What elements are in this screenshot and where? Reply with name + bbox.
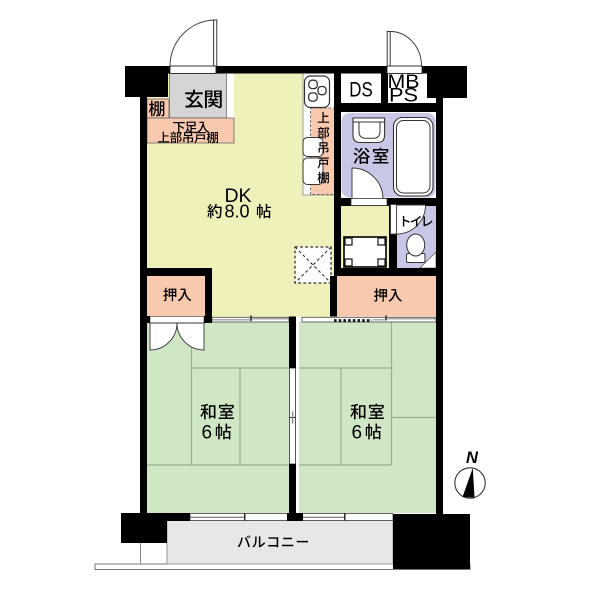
svg-text:DS: DS (349, 78, 373, 102)
svg-text:N: N (466, 449, 479, 467)
svg-text:6: 6 (202, 423, 213, 444)
svg-text:8.0: 8.0 (225, 202, 250, 222)
svg-text:6: 6 (352, 423, 363, 444)
